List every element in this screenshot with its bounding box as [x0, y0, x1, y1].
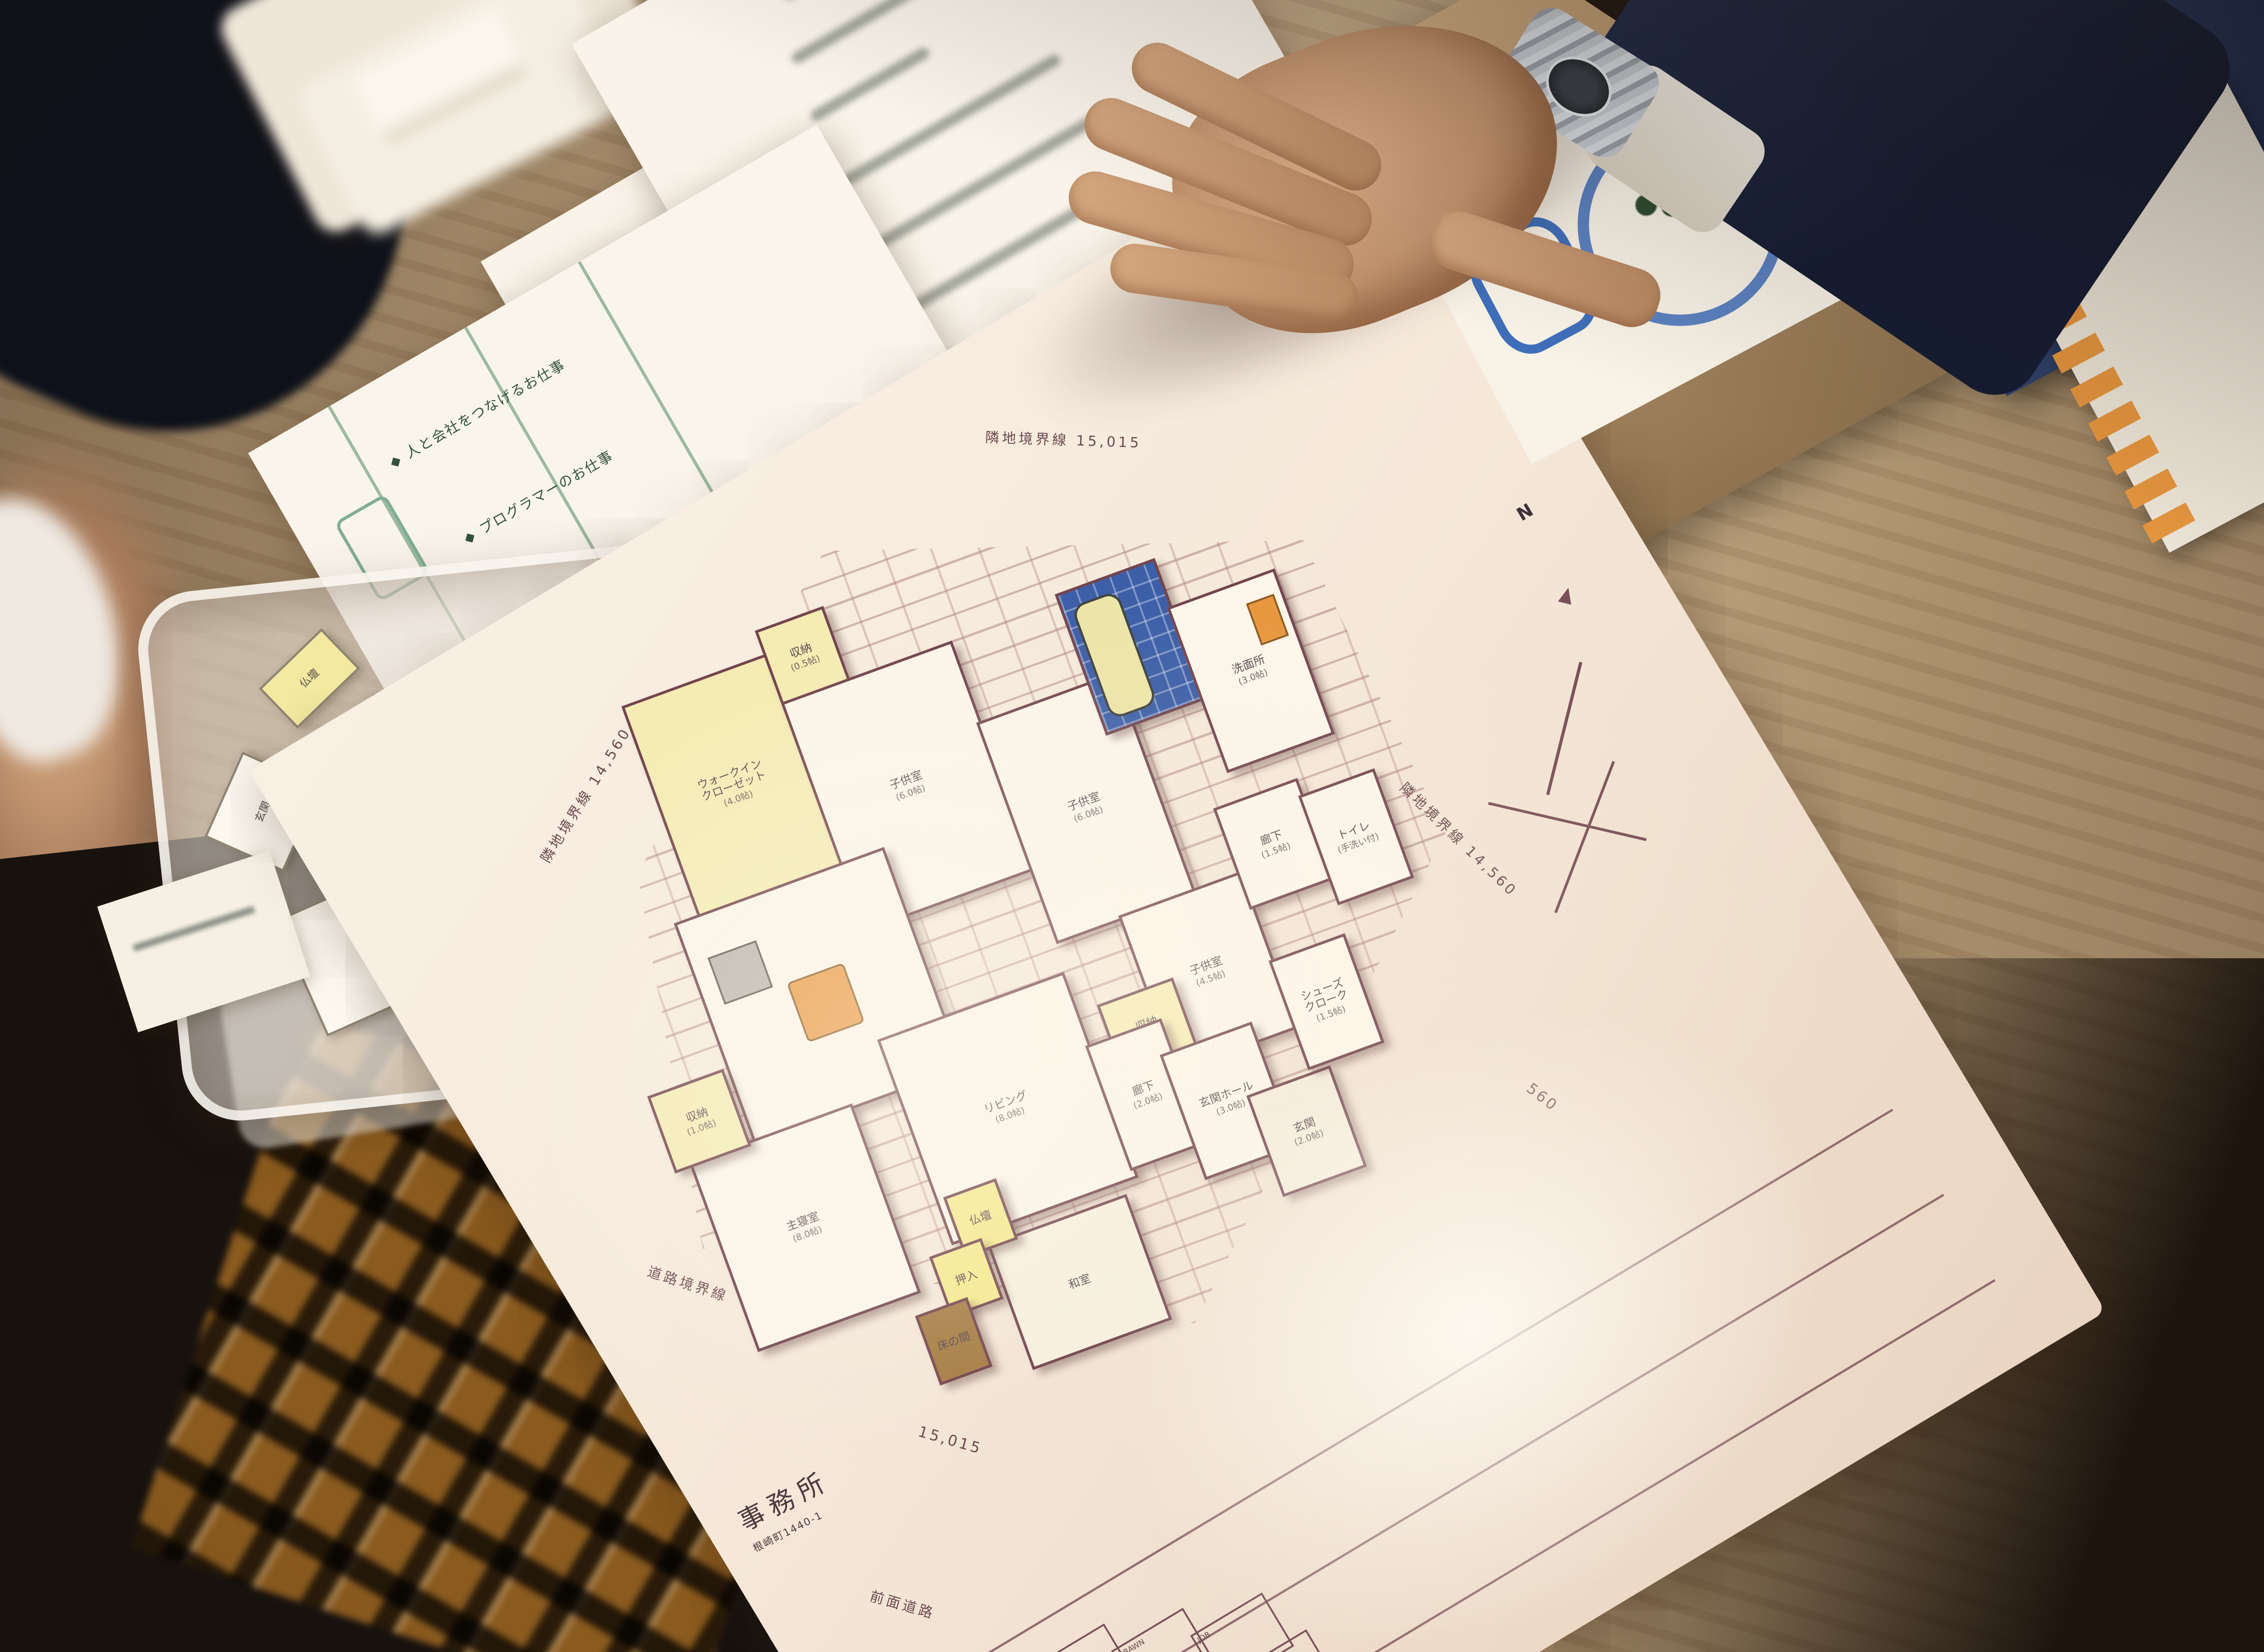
photo-desk-scene: 人と会社をつなげるお仕事 プログラマーのお仕事 建築士のお仕事 感想をアンケート… — [0, 0, 2264, 1652]
handwriting-line — [823, 53, 1062, 197]
handwriting-line — [809, 46, 931, 123]
job-item-1: 人と会社をつなげるお仕事 — [385, 353, 569, 471]
job-item-2: プログラマーのお仕事 — [459, 445, 617, 547]
handwriting-line — [133, 906, 255, 952]
handwriting-line — [790, 0, 954, 65]
